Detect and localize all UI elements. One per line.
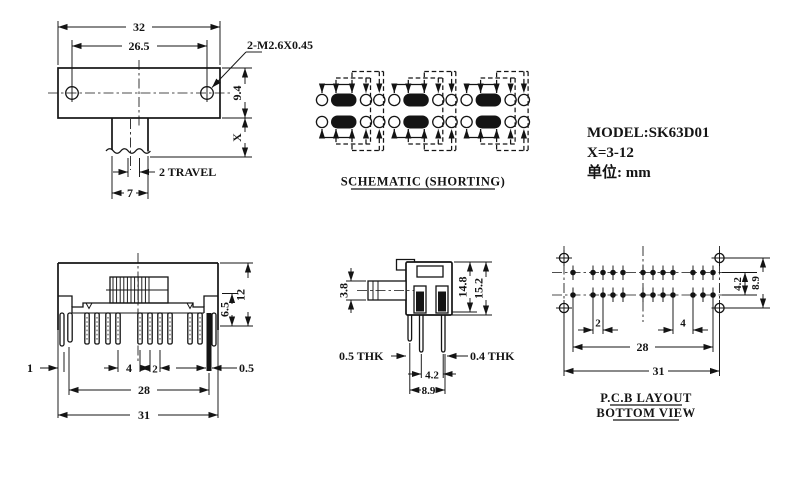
dim-front-body-height: 6.5: [218, 302, 232, 317]
dim-pad-span: 28: [637, 340, 649, 354]
dim-pin-thickness: 0.5: [239, 361, 254, 375]
end-terminal: [207, 313, 212, 371]
pcb-mounting-holes: [556, 250, 728, 316]
dim-pin-gap: 4: [126, 361, 132, 375]
terminal-pins: [85, 313, 202, 344]
technical-drawing: 32 26.5 2-M2.6X0.45 9.4 X 2 TRAVEL 7: [0, 0, 800, 480]
model-number: MODEL:SK63D01: [587, 125, 710, 141]
pcb-caption-line2: BOTTOM VIEW: [596, 406, 695, 420]
dim-shaft-width: 7: [127, 186, 133, 200]
schematic-diagram: SCHEMATIC (SHORTING): [316, 72, 529, 190]
side-view: 3.8 14.8 15.2 0.5 THK 0.4 THK 4.2 8.9: [337, 260, 516, 398]
dim-shaft-height: X: [230, 133, 244, 142]
pcb-caption-line1: P.C.B LAYOUT: [600, 391, 692, 405]
dim-travel: 2 TRAVEL: [159, 165, 216, 179]
dim-front-width: 31: [138, 408, 150, 422]
screw-callout: 2-M2.6X0.45: [247, 38, 313, 52]
model-unit: 单位: mm: [587, 163, 651, 181]
dim-body-height: 9.4: [230, 86, 244, 101]
dim-front-height: 12: [234, 289, 248, 301]
dim-height-inner: 14.8: [456, 277, 470, 298]
dim-knob-height: 3.8: [337, 283, 351, 298]
dim-hole-span: 31: [653, 364, 665, 378]
pcb-layout: 2 4 28 31 4.2 8.9 P.C.B LAYOUT BOTTOM VI…: [552, 246, 770, 420]
front-view: 12 6.5 1 4 2 0.5 28 31: [27, 253, 254, 422]
dim-leg-pitch: 4.2: [425, 370, 439, 382]
label-thk-left: 0.5 THK: [339, 349, 384, 363]
side-leg-left: [408, 315, 412, 341]
dim-leg-span: 8.9: [422, 385, 436, 397]
shaft: [112, 118, 148, 152]
dim-pin-pitch: 2: [152, 364, 158, 376]
model-info: MODEL:SK63D01 X=3-12 单位: mm: [587, 125, 710, 181]
dim-row-pitch: 4.2: [732, 277, 744, 291]
dim-hole-row-span: 8.9: [750, 276, 762, 290]
drawing-sheet: 32 26.5 2-M2.6X0.45 9.4 X 2 TRAVEL 7: [0, 0, 800, 480]
side-leg-right: [442, 315, 446, 352]
top-view: 32 26.5 2-M2.6X0.45 9.4 X 2 TRAVEL 7: [48, 20, 313, 200]
dim-pad-pitch: 2: [595, 318, 601, 330]
dim-overall-width: 32: [133, 20, 145, 34]
model-x-range: X=3-12: [587, 145, 634, 161]
dim-hole-spacing: 26.5: [129, 39, 150, 53]
dim-pad-gap: 4: [680, 318, 686, 330]
label-thk-right: 0.4 THK: [470, 349, 515, 363]
dim-tab-width: 1: [27, 361, 33, 375]
side-leg-mid: [420, 315, 424, 352]
dim-height-outer: 15.2: [472, 278, 486, 299]
dim-pin-span: 28: [138, 383, 150, 397]
break-line: [106, 149, 150, 154]
schematic-caption: SCHEMATIC (SHORTING): [341, 175, 506, 189]
